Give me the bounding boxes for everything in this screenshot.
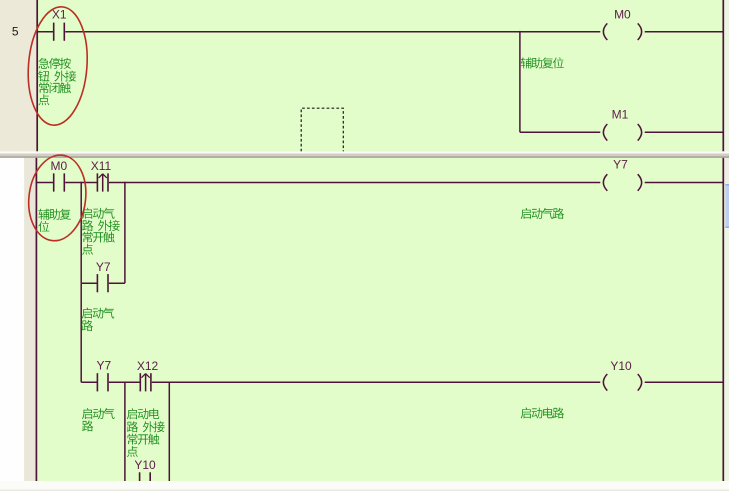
svg-text:M1: M1 [612,107,629,121]
svg-text:Y10: Y10 [610,359,632,373]
svg-text:5: 5 [12,24,19,38]
svg-text:X11: X11 [91,159,112,173]
svg-text:Y10: Y10 [134,458,156,472]
svg-text:Y7: Y7 [96,260,111,274]
svg-text:M0: M0 [614,8,631,22]
svg-text:X12: X12 [137,359,159,373]
svg-text:M0: M0 [50,159,67,173]
svg-text:Y7: Y7 [96,359,111,373]
svg-text:Y7: Y7 [613,158,628,172]
svg-text:X1: X1 [52,8,67,22]
